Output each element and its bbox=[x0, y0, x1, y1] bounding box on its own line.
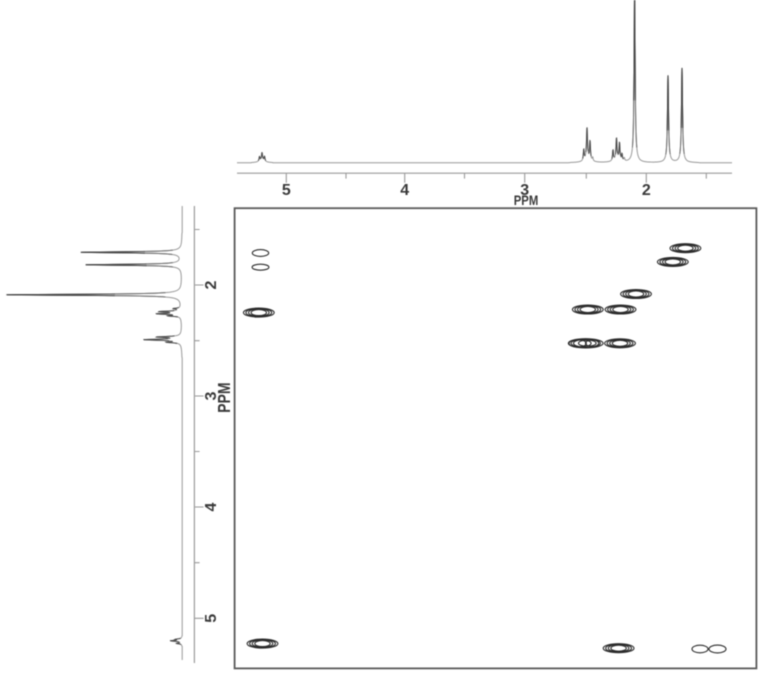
svg-text:2: 2 bbox=[203, 280, 220, 289]
svg-text:2: 2 bbox=[642, 182, 651, 199]
svg-text:4: 4 bbox=[203, 502, 220, 511]
svg-text:PPM: PPM bbox=[214, 382, 234, 413]
svg-text:PPM: PPM bbox=[514, 192, 539, 208]
svg-text:5: 5 bbox=[282, 182, 291, 199]
svg-text:5: 5 bbox=[203, 614, 220, 623]
svg-text:4: 4 bbox=[400, 182, 409, 199]
